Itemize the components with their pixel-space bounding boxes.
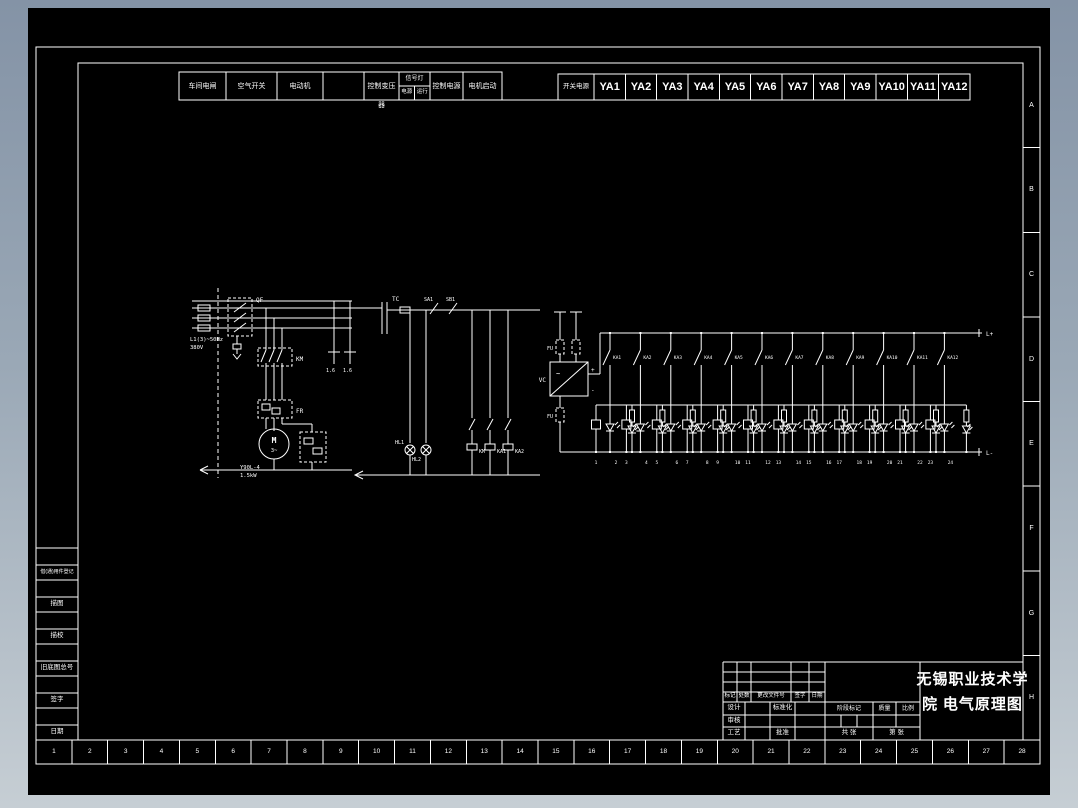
solenoid-branch: KA101920 — [865, 332, 912, 466]
branch-wire-number: 5 — [655, 460, 658, 466]
fuse-box — [556, 340, 564, 354]
junction-dot — [722, 451, 724, 453]
motor-letter: M — [272, 436, 277, 445]
solenoid-branch: KA71314 — [774, 332, 821, 466]
psu-minus-mark: - — [591, 387, 595, 394]
branch-wire-number: 23 — [928, 460, 934, 466]
branch-contact-label: KA4 — [704, 355, 712, 361]
junction-dot — [913, 451, 915, 453]
desktop-background: { "colors":{"line":"#ffffff","background… — [0, 0, 1078, 808]
ground-terminal — [233, 344, 241, 349]
valve-cell — [657, 74, 688, 100]
branch-contact-label: KA6 — [765, 355, 773, 361]
branch-wire-number: 22 — [917, 460, 923, 466]
fuse-box — [572, 340, 580, 354]
branch-contact-label: KA1 — [613, 355, 621, 361]
solenoid-branch: KA61112 — [744, 332, 791, 466]
junction-dot — [761, 332, 763, 334]
junction-dot — [670, 451, 672, 453]
junction-dot — [943, 451, 945, 453]
junction-dot — [838, 451, 840, 453]
branch-contact-label: KA5 — [735, 355, 743, 361]
circuit-lines: KA112KA234KA356KA478KA5910KA61112KA71314… — [192, 288, 982, 479]
branch-wire-number: 4 — [645, 460, 648, 466]
branch-wire-number: 18 — [856, 460, 862, 466]
branch-contact-label: KA7 — [795, 355, 803, 361]
coil-label: KM — [479, 449, 485, 455]
fuse-label: FU — [547, 346, 553, 352]
rectifier-element — [313, 448, 322, 454]
coil-symbol — [485, 444, 495, 450]
branch-contact-label: KA10 — [887, 355, 898, 361]
drawing-canvas[interactable]: KA112KA234KA356KA478KA5910KA61112KA71314… — [28, 8, 1050, 795]
junction-dot — [700, 451, 702, 453]
branch-wire-number: 7 — [686, 460, 689, 466]
header-cell — [463, 72, 502, 100]
header-cell — [558, 74, 594, 100]
component-boxes — [228, 298, 580, 462]
switch-label: SB1 — [446, 297, 455, 303]
junction-dot — [822, 332, 824, 334]
junction-dot — [595, 451, 597, 453]
solenoid-branch: KA356 — [652, 332, 699, 466]
branch-contact-label: KA2 — [643, 355, 651, 361]
junction-dot — [656, 451, 658, 453]
fuse-label: FU — [547, 414, 553, 420]
valve-cell — [813, 74, 844, 100]
branch-wire-number: 6 — [675, 460, 678, 466]
solenoid-branch: KA5910 — [713, 332, 760, 466]
junction-dot — [852, 451, 854, 453]
lamp-label: HL1 — [395, 440, 404, 446]
coil-label: KA1 — [497, 449, 506, 455]
breaker-label: QF — [256, 297, 264, 304]
junction-dot — [639, 332, 641, 334]
solenoid-branch: KA112 — [592, 332, 639, 466]
solenoid-branch: KA478 — [683, 332, 730, 466]
motor-model: Y90L-4 — [240, 465, 261, 471]
branch-contact-label: KA8 — [826, 355, 834, 361]
junction-dot — [883, 332, 885, 334]
junction-dot — [731, 332, 733, 334]
header-cell — [179, 72, 226, 100]
psu-ac-mark: ~ — [556, 370, 560, 378]
power-circuit-wires — [192, 301, 982, 479]
solenoid-branches: KA112KA234KA356KA478KA5910KA61112KA71314… — [592, 332, 973, 466]
branch-contact-label: KA3 — [674, 355, 682, 361]
thermal-relay-box — [258, 400, 292, 418]
junction-dot — [808, 451, 810, 453]
transformer-label: TC — [392, 296, 400, 303]
junction-dot — [929, 451, 931, 453]
junction-dot — [852, 332, 854, 334]
header-cell — [226, 72, 277, 100]
branch-contact-label: KA9 — [856, 355, 864, 361]
junction-dot — [813, 451, 815, 453]
junction-dot — [609, 332, 611, 334]
branch-wire-number: 24 — [948, 460, 954, 466]
valve-cell — [907, 74, 938, 100]
junction-dot — [609, 451, 611, 453]
branch-wire-number: 12 — [765, 460, 771, 466]
rectifier-element — [304, 438, 313, 444]
valve-cell — [625, 74, 656, 100]
junction-dot — [965, 451, 967, 453]
led-symbol — [606, 424, 614, 431]
junction-dot — [717, 451, 719, 453]
bus-minus-label: L- — [986, 450, 993, 457]
fuse-box — [556, 408, 564, 422]
junction-dot — [692, 451, 694, 453]
branch-wire-number: 11 — [745, 460, 751, 466]
schematic-svg: KA112KA234KA356KA478KA5910KA61112KA71314… — [0, 0, 1078, 808]
branch-contact-label: KA12 — [947, 355, 958, 361]
thermal-element — [272, 408, 280, 414]
junction-dot — [913, 332, 915, 334]
branch-wire-number: 2 — [615, 460, 618, 466]
solenoid-branch: KA122324 — [926, 332, 973, 466]
junction-dot — [883, 451, 885, 453]
junction-dot — [791, 451, 793, 453]
coil-symbol — [467, 444, 477, 450]
branch-wire-number: 3 — [625, 460, 628, 466]
branch-wire-number: 17 — [836, 460, 842, 466]
branch-contact-label: KA11 — [917, 355, 928, 361]
branch-wire-number: 20 — [887, 460, 893, 466]
supply-label: 380V — [190, 345, 204, 351]
valve-cell — [845, 74, 876, 100]
valve-cell — [594, 74, 625, 100]
junction-dot — [874, 451, 876, 453]
fuse-rating: 1.6 — [343, 368, 352, 374]
fuse-rating: 1.6 — [326, 368, 335, 374]
junction-dot — [700, 332, 702, 334]
branch-wire-number: 14 — [796, 460, 802, 466]
junction-dot — [777, 451, 779, 453]
branch-wire-number: 9 — [716, 460, 719, 466]
solenoid-branch: KA91718 — [835, 332, 882, 466]
valve-cell — [751, 74, 782, 100]
junction-dot — [822, 451, 824, 453]
solenoid-branch: KA112122 — [896, 332, 943, 466]
junction-dot — [761, 451, 763, 453]
header-cell — [277, 72, 323, 100]
valve-cell — [688, 74, 719, 100]
junction-dot — [791, 332, 793, 334]
junction-dot — [899, 451, 901, 453]
solenoid-coil — [592, 420, 601, 429]
psu-plus-mark: + — [591, 367, 595, 374]
junction-dot — [731, 451, 733, 453]
header-cell — [323, 72, 364, 100]
motor-power: 1.5kW — [240, 473, 257, 479]
junction-dot — [783, 451, 785, 453]
solenoid-branch: KA81516 — [804, 332, 851, 466]
header-cell — [364, 72, 399, 100]
branch-wire-number: 1 — [595, 460, 598, 466]
coil-label: KA2 — [515, 449, 524, 455]
branch-wire-number: 8 — [706, 460, 709, 466]
brake-rectifier-box — [300, 432, 326, 462]
lamp-label: HL2 — [412, 457, 421, 463]
thermal-label: FR — [296, 408, 304, 415]
junction-dot — [639, 451, 641, 453]
junction-dot — [747, 451, 749, 453]
branch-wire-number: 21 — [897, 460, 903, 466]
junction-dot — [670, 332, 672, 334]
valve-cell — [719, 74, 750, 100]
psu-label: VC — [539, 377, 547, 384]
thermal-element — [262, 404, 270, 410]
junction-dot — [661, 451, 663, 453]
title-block-grid — [723, 662, 1023, 740]
header-cell — [430, 72, 463, 100]
valve-cell — [782, 74, 813, 100]
bus-plus-label: L+ — [986, 331, 994, 338]
valve-cell — [876, 74, 907, 100]
contactor-label: KM — [296, 356, 304, 363]
junction-dot — [625, 451, 627, 453]
branch-wire-number: 10 — [735, 460, 741, 466]
branch-wire-number: 15 — [806, 460, 812, 466]
supply-label: L1(3)~50Hz — [190, 337, 223, 343]
valve-cell — [939, 74, 970, 100]
branch-wire-number: 16 — [826, 460, 832, 466]
junction-dot — [844, 451, 846, 453]
branch-wire-number: 13 — [776, 460, 782, 466]
branch-wire-number: 19 — [867, 460, 873, 466]
junction-dot — [943, 332, 945, 334]
motor-phase: 3~ — [271, 448, 278, 454]
switch-label: SA1 — [424, 297, 433, 303]
junction-dot — [753, 451, 755, 453]
junction-dot — [631, 451, 633, 453]
resistor-symbol — [964, 410, 969, 422]
junction-dot — [905, 451, 907, 453]
junction-dot — [869, 451, 871, 453]
solenoid-branch: KA234 — [622, 332, 669, 466]
junction-dot — [686, 451, 688, 453]
junction-dot — [935, 451, 937, 453]
